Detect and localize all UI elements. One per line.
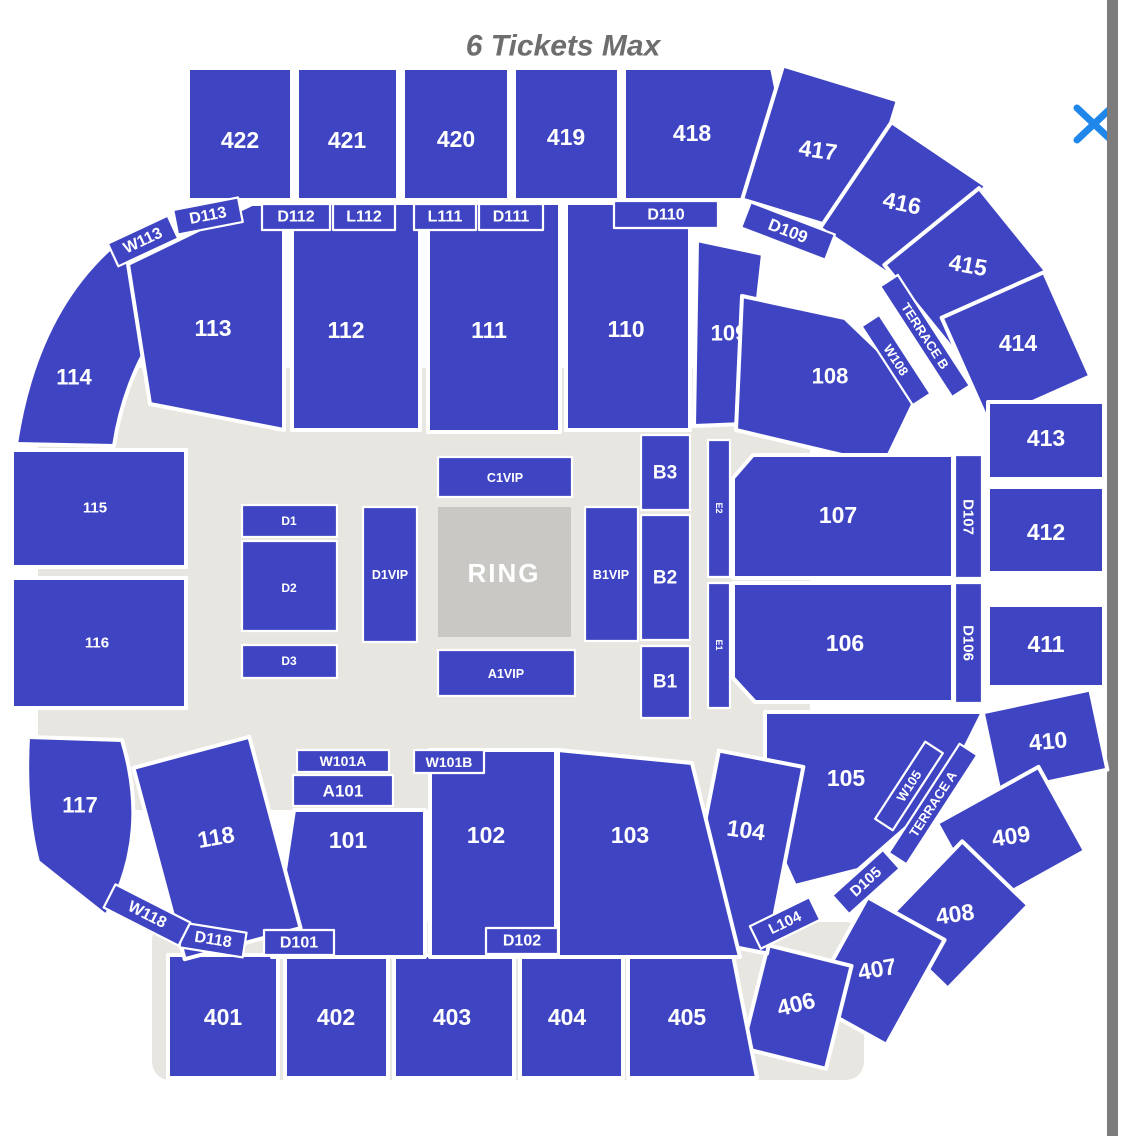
band-d110-label: D110 — [647, 207, 684, 224]
section-115-label: 115 — [83, 500, 107, 517]
section-103-label: 103 — [611, 822, 649, 848]
section-114-label: 114 — [56, 365, 92, 390]
band-d111-label: D111 — [493, 209, 530, 226]
band-d102-label: D102 — [503, 933, 541, 950]
scrollbar[interactable] — [1107, 0, 1118, 1136]
section-403-label: 403 — [433, 1004, 471, 1030]
section-101-label: 101 — [329, 827, 368, 853]
floor-e1-label: E1 — [714, 639, 724, 650]
section-111-label: 111 — [471, 317, 507, 343]
section-412-label: 412 — [1027, 519, 1065, 545]
section-422-label: 422 — [221, 127, 259, 153]
floor-d1-label: D1 — [281, 514, 297, 528]
section-414-label: 414 — [999, 330, 1038, 356]
close-icon[interactable] — [1077, 108, 1111, 140]
ring-stage-label: RING — [468, 558, 541, 588]
section-420-label: 420 — [437, 126, 475, 152]
section-409-label: 409 — [990, 820, 1032, 851]
max-tickets-title: 6 Tickets Max — [466, 30, 662, 63]
floor-b2-label: B2 — [653, 568, 677, 589]
section-410-label: 410 — [1028, 726, 1068, 755]
section-421-label: 421 — [328, 127, 367, 153]
band-d107-label: D107 — [960, 499, 977, 535]
section-113-label: 113 — [194, 315, 231, 341]
band-d101-label: D101 — [280, 935, 318, 952]
floor-b3-label: B3 — [653, 463, 677, 484]
section-104-label: 104 — [725, 814, 767, 845]
floor-d1vip-label: D1VIP — [372, 568, 408, 582]
section-418-label: 418 — [673, 120, 712, 146]
band-d112-label: D112 — [277, 209, 314, 226]
band-d106-label: D106 — [960, 625, 977, 661]
section-102[interactable] — [430, 750, 556, 957]
band-w101b-label: W101B — [426, 754, 473, 770]
section-105-label: 105 — [827, 765, 866, 791]
seat-map-overlay: 6 Tickets Max 422 421 420 419 418 417 41… — [0, 0, 1125, 1136]
section-107-label: 107 — [819, 502, 857, 528]
band-l111-label: L111 — [428, 209, 463, 226]
section-408-label: 408 — [934, 898, 976, 929]
section-417-label: 417 — [797, 134, 839, 165]
section-108-label: 108 — [812, 364, 849, 389]
section-401-label: 401 — [204, 1004, 243, 1030]
floor-b1vip-label: B1VIP — [593, 568, 629, 582]
floor-c1vip-label: C1VIP — [487, 471, 523, 485]
section-413-label: 413 — [1027, 425, 1065, 451]
band-a101-label: A101 — [323, 782, 364, 801]
floor-b1-label: B1 — [653, 672, 678, 693]
section-402-label: 402 — [317, 1004, 355, 1030]
section-411-label: 411 — [1027, 631, 1064, 657]
band-w101a-label: W101A — [320, 753, 367, 769]
section-117-label: 117 — [62, 793, 98, 818]
section-404-label: 404 — [548, 1004, 587, 1030]
section-102-label: 102 — [467, 822, 505, 848]
section-405-label: 405 — [668, 1004, 707, 1030]
floor-a1vip-label: A1VIP — [488, 667, 524, 681]
section-419-label: 419 — [547, 124, 585, 150]
floor-d2-label: D2 — [281, 581, 297, 595]
floor-d3-label: D3 — [281, 654, 297, 668]
band-l112-label: L112 — [346, 209, 382, 226]
floor-e2-label: E2 — [714, 502, 724, 513]
section-106-label: 106 — [826, 630, 864, 656]
section-110-label: 110 — [607, 316, 644, 342]
section-116-label: 116 — [85, 635, 109, 652]
section-112-label: 112 — [327, 317, 364, 343]
